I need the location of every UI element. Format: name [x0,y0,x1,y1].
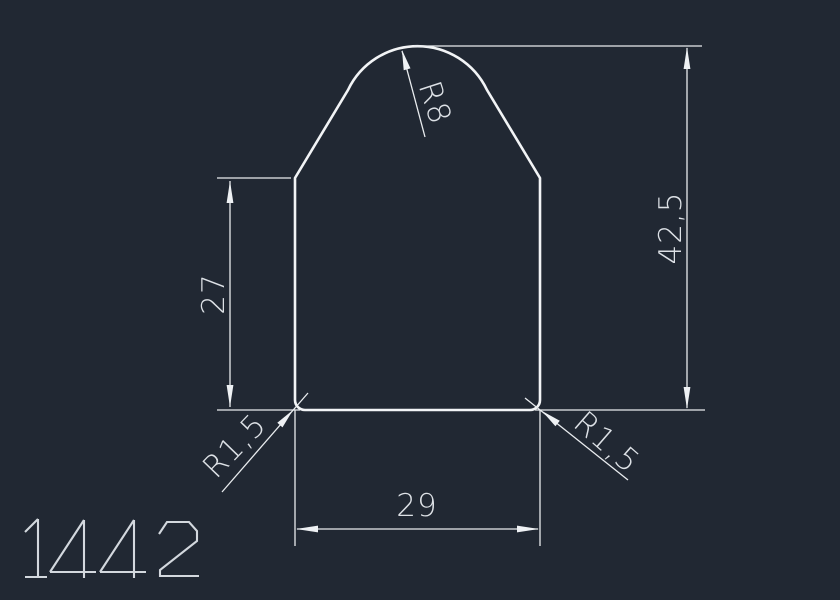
dimension-bottom-width: 29 [296,488,539,532]
arrowhead-down-icon [227,385,234,407]
arrowhead-leader-icon [277,410,293,427]
cad-drawing-canvas: 42,5 27 29 R8 R1,5 [0,0,840,600]
dim-label-corner-radius-right: R1,5 [567,404,647,480]
dim-label-top-radius: R8 [411,77,459,129]
dim-label-total-height: 42,5 [653,191,689,264]
dim-label-lower-height: 27 [196,273,232,314]
arrowhead-up-icon [227,181,234,203]
arrowhead-left-icon [296,526,318,533]
arrowhead-right-icon [517,526,539,533]
dimension-lower-height: 27 [196,181,233,407]
leader-corner-radius-left: R1,5 [196,393,308,492]
dimension-total-height: 42,5 [653,47,690,409]
arrowhead-leader-icon [542,411,560,426]
drawing-svg: 42,5 27 29 R8 R1,5 [0,0,840,600]
dim-label-bottom-width: 29 [396,488,437,524]
leader-top-radius: R8 [402,50,458,137]
drawing-number: 1442 [24,511,231,595]
arrowhead-down-icon [684,387,691,409]
extension-lines [217,46,705,546]
drawing-number-text: 1442 [24,511,231,595]
arrowhead-leader-icon [402,50,411,70]
arrowhead-up-icon [684,47,691,69]
